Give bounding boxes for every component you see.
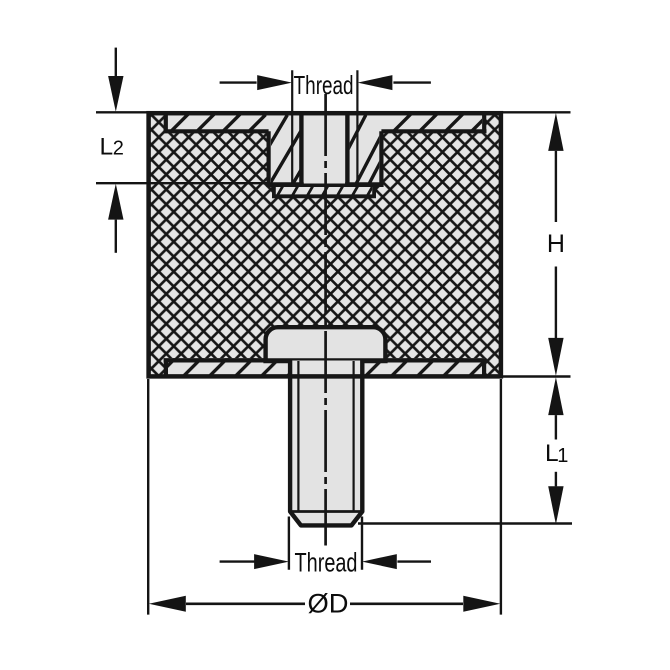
svg-text:Thread: Thread — [295, 548, 358, 578]
svg-text:2: 2 — [113, 137, 124, 159]
svg-text:H: H — [547, 230, 565, 258]
svg-text:1: 1 — [557, 445, 568, 467]
svg-text:Thread: Thread — [294, 70, 354, 100]
svg-text:L: L — [100, 133, 114, 160]
svg-text:ØD: ØD — [308, 589, 349, 619]
